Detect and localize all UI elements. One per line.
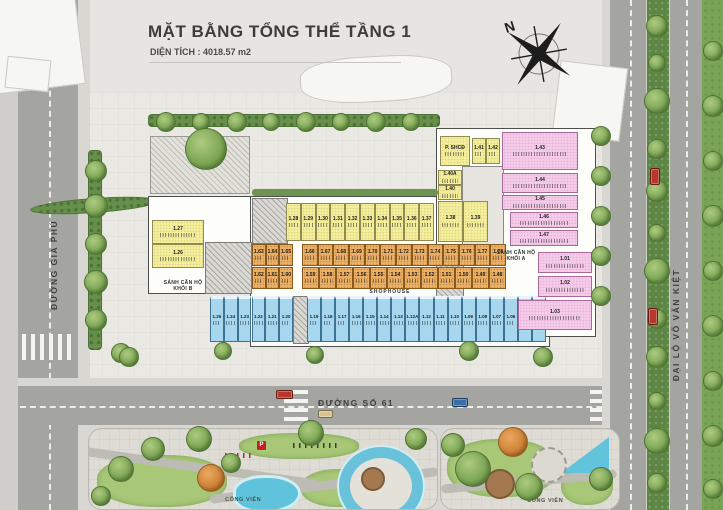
hedge-west xyxy=(88,150,102,350)
people-row-red xyxy=(225,453,253,458)
core-lobby-b xyxy=(293,296,309,344)
crosswalk-left-road xyxy=(22,334,76,360)
brown-plaza xyxy=(485,469,515,499)
plaza-circle xyxy=(531,447,567,483)
page-subtitle: DIỆN TÍCH : 4018.57 m2 xyxy=(150,47,251,57)
pool-left-park xyxy=(233,475,301,510)
lobby-b-label: SẢNH CĂN HỘ KHỐI B xyxy=(146,280,220,293)
park-left-label: CÔNG VIÊN xyxy=(225,497,261,503)
street-name-bottom: ĐƯỜNG SỐ 61 xyxy=(318,398,394,408)
pool-right-park xyxy=(561,437,609,473)
compass-n-label: N xyxy=(502,18,517,36)
people-row-red xyxy=(199,471,223,476)
people-row xyxy=(293,443,339,448)
compass-icon: N xyxy=(497,10,577,90)
lobby-a-label: SẢNH CĂN HỘ KHỐI A xyxy=(484,250,548,263)
green-verge-right xyxy=(702,0,723,510)
context-building xyxy=(4,56,51,92)
park-right: CÔNG VIÊN xyxy=(440,428,620,510)
shophouse-label: SHOPHOUSE xyxy=(330,289,450,295)
road-right-median xyxy=(646,0,670,510)
page-title: MẶT BẰNG TỔNG THỂ TẦNG 1 xyxy=(148,22,411,42)
site-plan: MẶT BẰNG TỔNG THỂ TẦNG 1 DIỆN TÍCH : 401… xyxy=(0,0,723,510)
park-right-label: CÔNG VIÊN xyxy=(527,498,563,504)
corridor-east xyxy=(462,166,504,252)
roof-planter xyxy=(252,189,438,196)
crosswalk-bottom-1 xyxy=(284,390,308,421)
fountain-center xyxy=(361,467,385,491)
park-left: P CÔNG VIÊN xyxy=(88,428,438,510)
title-rule xyxy=(149,62,401,63)
compass-rose: N xyxy=(497,10,577,90)
road-right-lane-2 xyxy=(686,0,688,510)
plaza-hatch-west xyxy=(150,136,250,194)
parking-sign: P xyxy=(257,441,266,450)
street-name-right: ĐẠI LỘ VÕ VĂN KIỆT xyxy=(671,265,681,385)
road-right-lane-1 xyxy=(630,0,632,510)
hedge-north xyxy=(148,114,440,127)
street-name-left: ĐƯỜNG GIA PHÚ xyxy=(49,230,59,310)
building-wing-east xyxy=(436,128,596,337)
core-north xyxy=(252,198,288,244)
